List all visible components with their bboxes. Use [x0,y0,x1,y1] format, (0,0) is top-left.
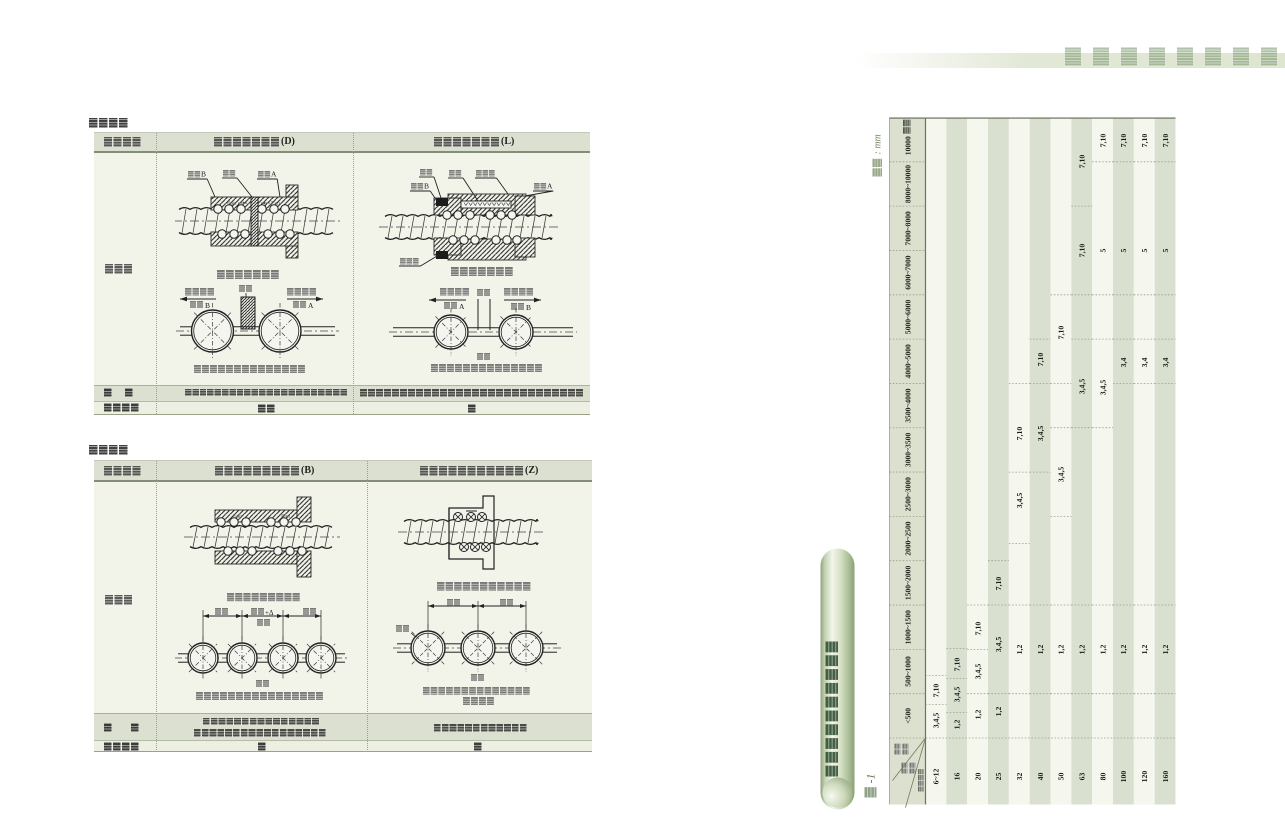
svg-text:2000~2500: 2000~2500 [903,521,912,556]
svg-text:Fao: Fao [233,514,242,520]
svg-text:3,4,5: 3,4,5 [1035,425,1044,441]
svg-text:160: 160 [1160,770,1169,782]
svg-text:16: 16 [952,772,961,780]
svg-text:3,4,5: 3,4,5 [1077,378,1086,394]
svg-text:1500~2000: 1500~2000 [903,565,912,600]
svg-text:40: 40 [1035,772,1044,780]
svg-text:3,4,5: 3,4,5 [931,712,940,728]
svg-text:1,2: 1,2 [1035,644,1044,654]
svg-text:1,2: 1,2 [1119,644,1128,654]
svg-text:3,4,5: 3,4,5 [1098,379,1107,395]
svg-text:3500~4000: 3500~4000 [903,388,912,423]
svg-text:4000~5000: 4000~5000 [903,343,912,378]
svg-text:7,10: 7,10 [1119,133,1128,147]
svg-text:8000~10000: 8000~10000 [903,164,912,202]
svg-text:B: B [526,303,531,312]
svg-text:5: 5 [1160,248,1169,252]
svg-text:3000~3500: 3000~3500 [903,432,912,467]
svg-text:6000~7000: 6000~7000 [903,255,912,290]
svg-text:3,4: 3,4 [1139,357,1148,367]
svg-text:3,4,5: 3,4,5 [973,663,982,679]
svg-text:<500: <500 [903,707,912,723]
svg-text:100: 100 [1119,770,1128,782]
svg-text:1,2: 1,2 [973,709,982,719]
svg-text:1,2: 1,2 [1056,644,1065,654]
svg-text:3,4,5: 3,4,5 [994,636,1003,652]
svg-text:3,4: 3,4 [1119,357,1128,367]
svg-text:5: 5 [1119,248,1128,252]
svg-text:3,4,5: 3,4,5 [952,686,961,702]
svg-text:A: A [308,301,314,310]
svg-text:120: 120 [1139,770,1148,782]
svg-text:7,10: 7,10 [1056,325,1065,339]
svg-text:A: A [271,170,277,179]
svg-text:B: B [424,182,429,191]
svg-text:B: B [201,170,206,179]
svg-text:7,10: 7,10 [1014,426,1023,440]
svg-text:6~12: 6~12 [931,768,940,784]
svg-text:7000~8000: 7000~8000 [903,210,912,245]
svg-text:7,10: 7,10 [994,576,1003,590]
svg-text:1,2: 1,2 [952,719,961,729]
svg-text:7,10: 7,10 [1098,133,1107,147]
svg-text:Fao: Fao [281,514,290,520]
svg-text:A: A [547,182,553,191]
svg-text:5000~6000: 5000~6000 [903,299,912,334]
svg-text:A: A [459,302,465,311]
svg-text:5: 5 [1139,248,1148,252]
svg-text:1000~1500: 1000~1500 [903,609,912,644]
svg-text:7,10: 7,10 [973,621,982,635]
svg-text:25: 25 [994,772,1003,780]
svg-text:Fao: Fao [227,201,236,207]
svg-text:500~1000: 500~1000 [903,656,912,687]
svg-text:1,2: 1,2 [1014,644,1023,654]
svg-text:7,10: 7,10 [1160,133,1169,147]
svg-text:7,10: 7,10 [952,657,961,671]
svg-text:1,2: 1,2 [1077,644,1086,654]
svg-text:3,4,5: 3,4,5 [1056,466,1065,482]
svg-text:80: 80 [1098,772,1107,780]
svg-text:7,10: 7,10 [1035,352,1044,366]
svg-text:1,2: 1,2 [1098,644,1107,654]
svg-text:B: B [205,301,210,310]
svg-text:3,4,5: 3,4,5 [1014,492,1023,508]
svg-text:1,2: 1,2 [1160,644,1169,654]
svg-text:2500~3000: 2500~3000 [903,476,912,511]
svg-text:: mm: : mm [872,134,883,154]
svg-text:-1: -1 [863,773,877,783]
svg-text:7,10: 7,10 [1077,243,1086,257]
svg-text:1,2: 1,2 [1139,644,1148,654]
svg-text:7,10: 7,10 [1077,154,1086,168]
svg-text:Fao: Fao [271,201,280,207]
svg-text:7,10: 7,10 [931,683,940,697]
svg-text:10000: 10000 [903,136,912,155]
svg-text:50: 50 [1056,772,1065,780]
svg-text:20: 20 [973,772,982,780]
svg-text:+Δ: +Δ [265,609,274,617]
svg-text:1,2: 1,2 [994,706,1003,716]
svg-text:5: 5 [1098,248,1107,252]
svg-text:3,4: 3,4 [1160,357,1169,367]
svg-text:63: 63 [1077,772,1086,780]
svg-text:7,10: 7,10 [1139,133,1148,147]
svg-text:32: 32 [1014,772,1023,780]
